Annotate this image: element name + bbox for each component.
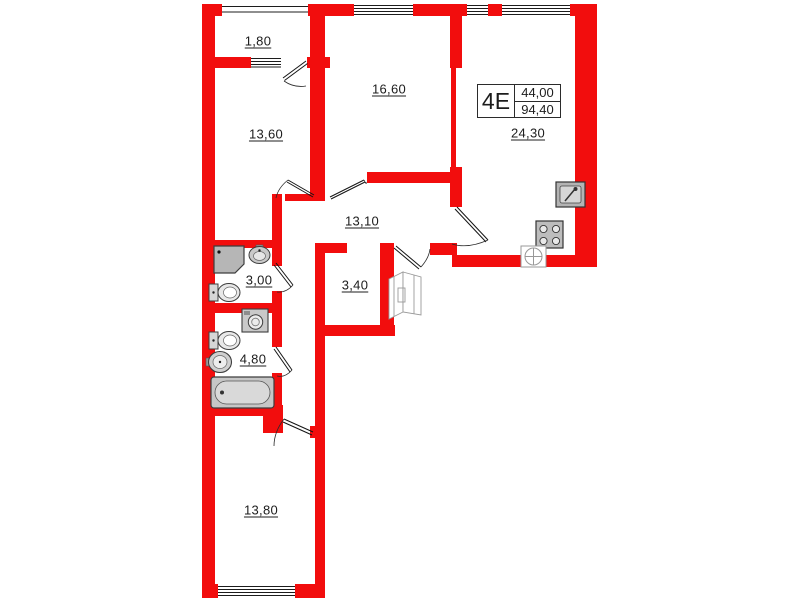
balcony-door [283,61,308,86]
wall-segment [315,325,395,336]
room-label-hall: 13,10 [345,214,379,229]
room-label-room1: 13,60 [249,127,283,142]
window [467,4,488,16]
wall-segment [450,167,462,207]
room-label-bathroom1: 3,00 [246,273,273,288]
wall-segment [450,12,462,68]
storage-nook-door [394,246,430,269]
window [502,4,570,16]
window [354,4,413,16]
unit-type-label: 4Е [478,85,515,117]
wall-segment [310,426,318,438]
room-label-room2: 16,60 [372,82,406,97]
window [218,585,295,597]
wall-segment [272,194,282,266]
unit-info-box: 4Е 44,00 94,40 [477,84,561,118]
toilet-icon [209,284,240,302]
wall-segment [263,405,283,433]
room2-door [330,180,366,199]
room-label-bathroom2: 4,80 [240,352,267,367]
wall-segment [367,172,462,183]
room-label-balcony: 1,80 [245,34,272,49]
wall-segment [451,66,456,169]
vent-icon [521,246,546,267]
wall-segment [488,4,502,16]
bathtub-icon [211,377,274,408]
balcony-window [251,57,281,68]
kitchen-door [452,207,488,246]
wall-segment [215,57,251,68]
wall-segment [310,12,325,196]
wall-segment [430,243,457,255]
wall-segment [575,4,597,267]
wall-segment [272,291,282,347]
floor-plan: 1,80 13,60 16,60 24,30 13,10 3,00 3,40 4… [0,0,800,600]
wardrobe-icon [389,272,421,319]
wall-segment [315,243,325,598]
total-area-value: 94,40 [515,102,560,118]
kitchen-sink-icon [556,182,585,207]
living-area-value: 44,00 [515,85,560,102]
toilet-icon [209,332,240,350]
stove-icon [536,221,563,248]
unit-areas: 44,00 94,40 [515,85,560,117]
bathroom2-door [274,347,292,376]
shower-icon [214,246,244,273]
bathroom1-door [274,263,293,292]
balcony-railing [222,4,308,16]
wall-segment [202,4,222,16]
room-label-kitchen-living: 24,30 [511,126,545,141]
room-label-room3: 13,80 [244,503,278,518]
wall-segment [285,194,325,201]
fixtures [206,182,585,408]
wall-segment [202,584,218,598]
washing-machine-icon [242,309,268,332]
room-label-storage: 3,40 [342,278,369,293]
wall-segment [295,584,325,598]
